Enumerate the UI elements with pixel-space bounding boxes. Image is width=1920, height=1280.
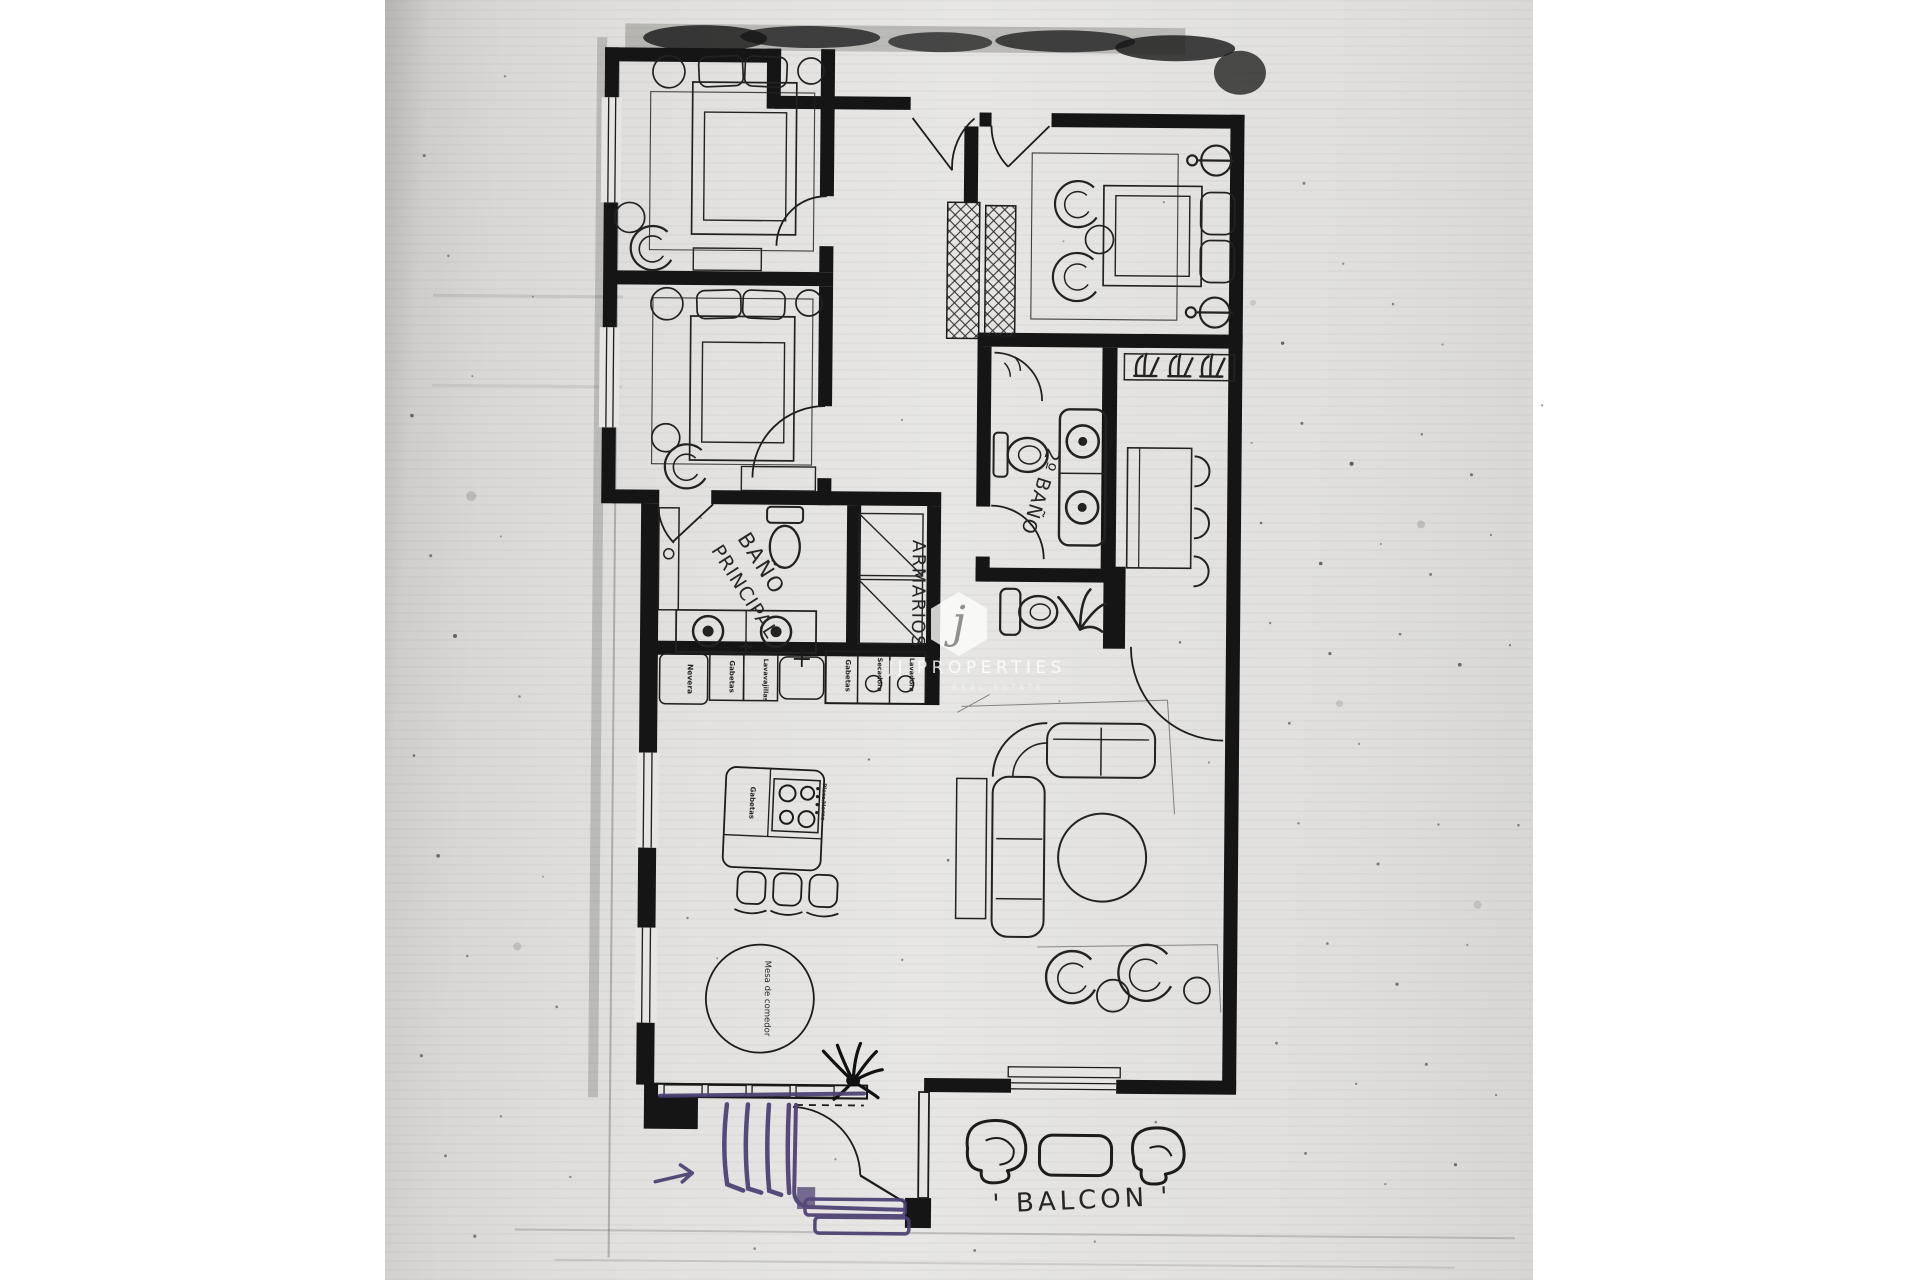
hatched-wardrobes (947, 202, 1016, 339)
living-room (955, 694, 1224, 1012)
bedroom-2 (649, 288, 822, 491)
label-balcony: ' BALCON ' (992, 1182, 1172, 1220)
label-second-bath: 2º BAÑO (1016, 446, 1065, 538)
label-island-drawers: Gabetas (747, 786, 756, 819)
bar-stools (734, 871, 840, 917)
small-plant (1058, 589, 1106, 631)
dining-area (705, 944, 814, 1053)
desk-nook (1122, 354, 1234, 587)
label-drawers-2: Gabetas (844, 659, 852, 692)
watermark-tagline: REAL ESTATE (952, 683, 1045, 692)
shelf-plants (1134, 354, 1224, 377)
label-dishwasher: Lavavajillas (761, 659, 769, 702)
balcony-furniture (967, 1120, 1185, 1184)
label-fridge: Nevera (686, 664, 695, 694)
arrow-icon (655, 1165, 692, 1182)
photo-of-floorplan: BAÑO PRINCIPAL ARMARIOS 2º BAÑO ' BALCON… (0, 0, 1920, 1280)
guest-wc (1000, 589, 1106, 636)
watermark-logo-letter: j (952, 597, 966, 648)
label-dryer: Secadora (876, 658, 884, 692)
bedroom-1 (614, 54, 824, 271)
label-wardrobes: ARMARIOS (907, 540, 929, 648)
bedroom-3 (1031, 144, 1236, 328)
label-dining-table: Mesa de comedor (762, 961, 773, 1037)
watermark-brand: JJ PROPERTIES (888, 658, 1066, 678)
label-drawers-1: Gabetas (728, 660, 736, 693)
